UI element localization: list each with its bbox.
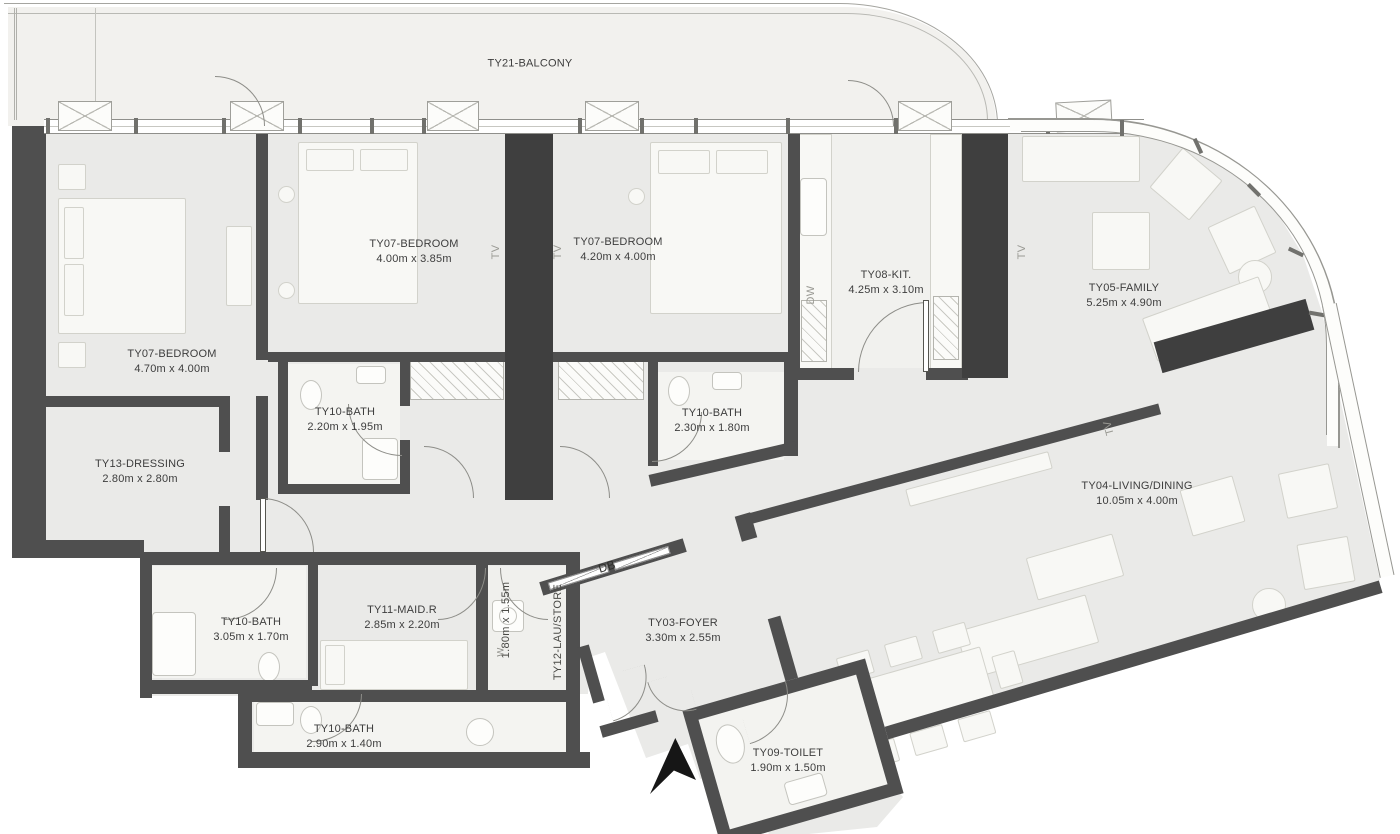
- basin: [256, 702, 294, 726]
- pillow: [325, 645, 345, 685]
- wall: [219, 506, 230, 556]
- mullion: [1120, 120, 1124, 136]
- wall: [552, 352, 798, 362]
- room-dims: 2.90m x 1.40m: [306, 737, 381, 752]
- room-label-toilet: TY09-TOILET 1.90m x 1.50m: [750, 746, 825, 776]
- dw-label: DW: [805, 286, 817, 305]
- nightstand: [58, 164, 86, 190]
- mullion: [786, 118, 790, 134]
- wall: [12, 540, 144, 558]
- stool: [278, 282, 295, 299]
- wall: [400, 354, 410, 406]
- wall: [278, 484, 410, 494]
- room-label-bath-2: TY10-BATH 2.30m x 1.80m: [674, 406, 749, 436]
- wall: [219, 396, 230, 452]
- room-dims: 4.00m x 3.85m: [369, 252, 458, 267]
- room-name: TY07-BEDROOM: [369, 237, 458, 252]
- pillow: [64, 207, 84, 259]
- door-leaf: [260, 498, 266, 552]
- room-label-family: TY05-FAMILY 5.25m x 4.90m: [1086, 281, 1161, 311]
- room-dims: 2.20m x 1.95m: [307, 420, 382, 435]
- wall: [140, 552, 580, 565]
- glass-curve-inner: [1021, 131, 1327, 435]
- wall: [278, 354, 288, 494]
- kitchen-appliance: [933, 296, 959, 360]
- room-name: TY10-BATH: [306, 722, 381, 737]
- washer-label: W: [496, 647, 507, 656]
- pillow: [306, 149, 354, 171]
- room-label-kitchen: TY08-KIT. 4.25m x 3.10m: [848, 268, 923, 298]
- room-label-bath-1: TY10-BATH 2.20m x 1.95m: [307, 405, 382, 435]
- mullion: [422, 118, 426, 134]
- pillow: [716, 150, 768, 174]
- wall: [256, 128, 268, 360]
- wardrobe: [558, 358, 644, 400]
- dining-chair: [932, 622, 971, 654]
- room-label-laundry: TY12-LAU/STORE: [552, 584, 564, 680]
- balcony-edge-line: [14, 8, 17, 120]
- mullion: [694, 118, 698, 134]
- mullion: [46, 118, 50, 134]
- wc: [668, 376, 690, 406]
- room-name: TY07-BEDROOM: [127, 347, 216, 362]
- mullion: [134, 118, 138, 134]
- wall: [44, 396, 230, 407]
- mullion: [578, 118, 582, 134]
- room-name: TY07-BEDROOM: [573, 235, 662, 250]
- room-name: TY09-TOILET: [750, 746, 825, 761]
- wall: [256, 396, 268, 500]
- mullion: [370, 118, 374, 134]
- room-label-bath-4: TY10-BATH 2.90m x 1.40m: [306, 722, 381, 752]
- room-dims: 3.30m x 2.55m: [645, 631, 720, 646]
- wall: [268, 352, 508, 362]
- room-dims: 4.70m x 4.00m: [127, 362, 216, 377]
- room-dims: 3.05m x 1.70m: [213, 630, 288, 645]
- room-dims: 2.80m x 2.80m: [95, 472, 185, 487]
- wall: [140, 556, 152, 698]
- wall: [788, 128, 800, 380]
- room-name: TY13-DRESSING: [95, 457, 185, 472]
- room-name: TY04-LIVING/DINING: [1081, 479, 1192, 494]
- dining-chair: [884, 635, 923, 667]
- room-dims: 1.90m x 1.50m: [750, 761, 825, 776]
- nightstand: [58, 342, 86, 368]
- wall: [12, 126, 46, 558]
- room-name: TY21-BALCONY: [488, 57, 573, 72]
- wc: [258, 652, 280, 682]
- tv-label: TV: [490, 245, 502, 260]
- room-label-maid: TY11-MAID.R 2.85m x 2.20m: [364, 603, 439, 633]
- room-dims: 4.25m x 3.10m: [848, 283, 923, 298]
- mullion: [640, 118, 644, 134]
- tv-label: TV: [552, 245, 564, 260]
- basin: [356, 366, 386, 384]
- mullion: [298, 118, 302, 134]
- pillar: [962, 128, 1008, 378]
- room-label-living-dining: TY04-LIVING/DINING 10.05m x 4.00m: [1081, 479, 1192, 509]
- window-bay: [58, 101, 112, 131]
- room-label-dressing: TY13-DRESSING 2.80m x 2.80m: [95, 457, 185, 487]
- armchair: [1296, 536, 1355, 590]
- tv-label: TV: [1016, 245, 1028, 260]
- room-label-foyer: TY03-FOYER 3.30m x 2.55m: [645, 616, 720, 646]
- room-dims: 5.25m x 4.90m: [1086, 296, 1161, 311]
- pillow: [658, 150, 710, 174]
- room-name: TY05-FAMILY: [1086, 281, 1161, 296]
- floor-plan: TY21-BALCONY TY07-BEDROOM 4.70m x 4.00m …: [0, 0, 1400, 834]
- room-name: TY11-MAID.R: [364, 603, 439, 618]
- room-name: TY10-BATH: [213, 615, 288, 630]
- bathtub: [152, 612, 196, 676]
- pillar: [505, 128, 553, 500]
- wall: [788, 368, 854, 380]
- wall: [308, 556, 318, 686]
- basin: [712, 372, 742, 390]
- room-name: TY03-FOYER: [645, 616, 720, 631]
- room-label-balcony: TY21-BALCONY: [488, 57, 573, 72]
- stool: [628, 188, 645, 205]
- stool: [278, 186, 295, 203]
- pillow: [64, 264, 84, 316]
- room-label-bedroom-master: TY07-BEDROOM 4.70m x 4.00m: [127, 347, 216, 377]
- kitchen-hob: [801, 300, 827, 362]
- room-label-bath-3: TY10-BATH 3.05m x 1.70m: [213, 615, 288, 645]
- wc: [711, 721, 749, 767]
- wall: [238, 752, 590, 768]
- room-name: TY10-BATH: [674, 406, 749, 421]
- window-bay: [585, 101, 639, 131]
- room-name: TY08-KIT.: [848, 268, 923, 283]
- room-label-bedroom-3: TY07-BEDROOM 4.20m x 4.00m: [573, 235, 662, 265]
- room-label-bedroom-2: TY07-BEDROOM 4.00m x 3.85m: [369, 237, 458, 267]
- dresser: [226, 226, 252, 306]
- kitchen-sink: [800, 178, 827, 236]
- room-dims: 2.85m x 2.20m: [364, 618, 439, 633]
- door-leaf: [923, 300, 929, 372]
- room-dims: 2.30m x 1.80m: [674, 421, 749, 436]
- pillow: [360, 149, 408, 171]
- dining-chair: [991, 650, 1023, 689]
- window-bay: [898, 101, 952, 131]
- room-dims: 4.20m x 4.00m: [573, 250, 662, 265]
- room-dims: 10.05m x 4.00m: [1081, 494, 1192, 509]
- shower-drain: [466, 718, 494, 746]
- room-name: TY10-BATH: [307, 405, 382, 420]
- wardrobe: [410, 358, 504, 400]
- wall: [240, 690, 580, 702]
- basin: [783, 772, 828, 806]
- window-bay: [427, 101, 479, 131]
